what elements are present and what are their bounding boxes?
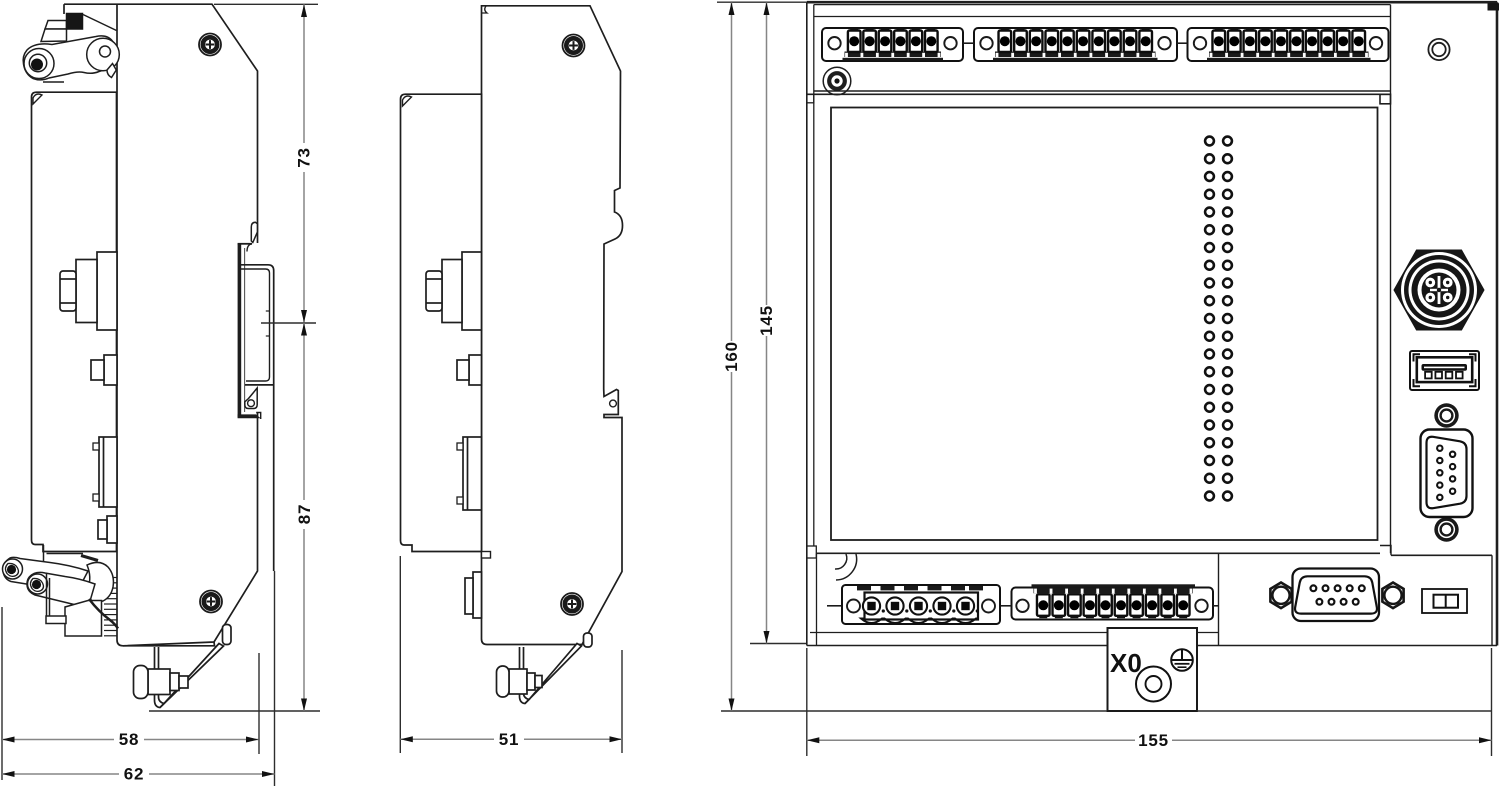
svg-text:87: 87 — [295, 504, 314, 525]
svg-text:X0: X0 — [1110, 648, 1142, 678]
svg-text:160: 160 — [722, 341, 741, 372]
svg-text:58: 58 — [119, 730, 140, 749]
svg-text:155: 155 — [1138, 731, 1169, 750]
svg-text:73: 73 — [295, 147, 314, 168]
svg-text:62: 62 — [124, 765, 145, 784]
svg-text:51: 51 — [499, 730, 520, 749]
svg-text:145: 145 — [757, 305, 776, 336]
